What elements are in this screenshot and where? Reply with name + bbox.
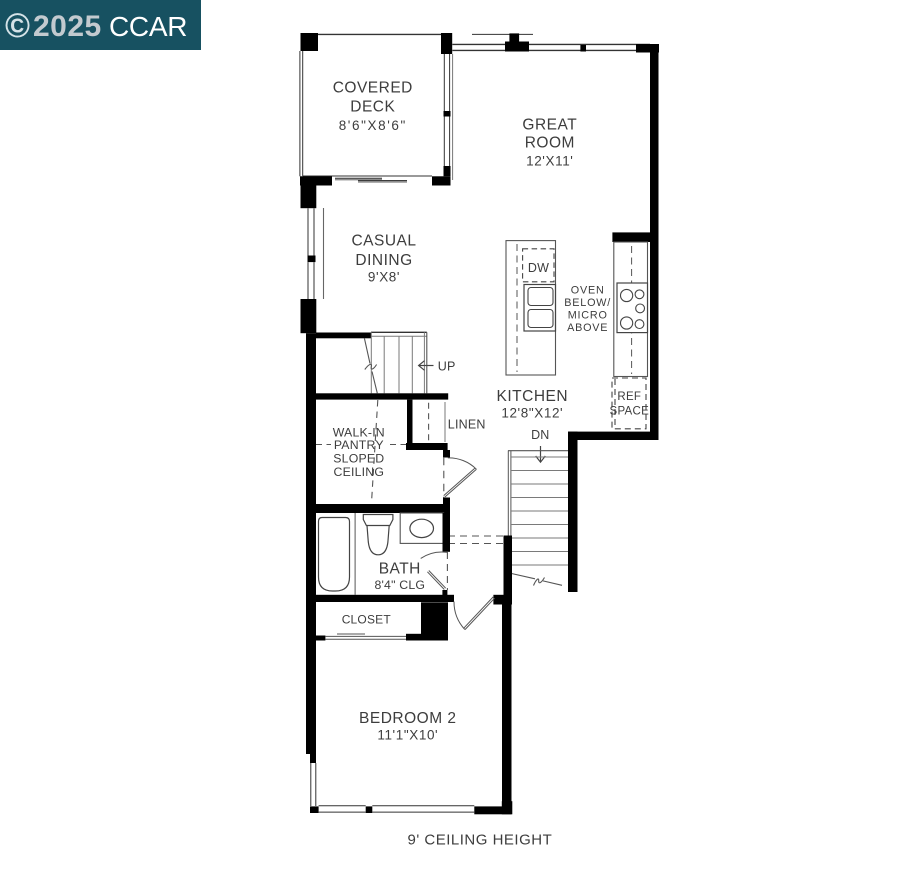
svg-text:CEILING: CEILING xyxy=(333,465,384,479)
svg-text:OVEN: OVEN xyxy=(571,285,605,297)
svg-text:BELOW/: BELOW/ xyxy=(564,297,611,309)
svg-text:UP: UP xyxy=(438,359,456,373)
svg-text:PANTRY: PANTRY xyxy=(334,438,384,452)
svg-text:GREAT: GREAT xyxy=(522,117,577,134)
svg-text:8'6"X8'6": 8'6"X8'6" xyxy=(339,118,407,133)
svg-text:DN: DN xyxy=(531,428,549,442)
svg-text:12'X11': 12'X11' xyxy=(526,153,573,168)
svg-text:9'X8': 9'X8' xyxy=(368,269,400,284)
svg-text:SPACE: SPACE xyxy=(609,405,649,417)
svg-text:MICRO: MICRO xyxy=(568,310,608,322)
svg-text:©: © xyxy=(5,7,30,45)
svg-text:CLOSET: CLOSET xyxy=(342,613,392,627)
svg-text:11'1"X10': 11'1"X10' xyxy=(377,728,438,743)
svg-text:KITCHEN: KITCHEN xyxy=(497,388,569,405)
svg-text:BATH: BATH xyxy=(379,560,421,577)
svg-text:DINING: DINING xyxy=(355,252,412,269)
svg-text:COVERED: COVERED xyxy=(333,79,413,96)
svg-text:12'8"X12': 12'8"X12' xyxy=(501,406,563,421)
svg-text:2025: 2025 xyxy=(33,10,102,43)
svg-text:CCAR: CCAR xyxy=(109,11,187,42)
svg-text:ABOVE: ABOVE xyxy=(567,322,608,334)
svg-text:BEDROOM 2: BEDROOM 2 xyxy=(359,710,457,727)
svg-text:8'4" CLG: 8'4" CLG xyxy=(374,578,425,592)
svg-text:SLOPED: SLOPED xyxy=(333,451,384,465)
svg-text:ROOM: ROOM xyxy=(525,134,575,151)
svg-text:DW: DW xyxy=(528,261,549,275)
svg-text:LINEN: LINEN xyxy=(448,417,486,431)
svg-text:REF: REF xyxy=(617,391,641,403)
svg-text:DECK: DECK xyxy=(350,98,395,115)
svg-text:9' CEILING HEIGHT: 9' CEILING HEIGHT xyxy=(408,832,553,849)
svg-text:CASUAL: CASUAL xyxy=(351,232,416,249)
